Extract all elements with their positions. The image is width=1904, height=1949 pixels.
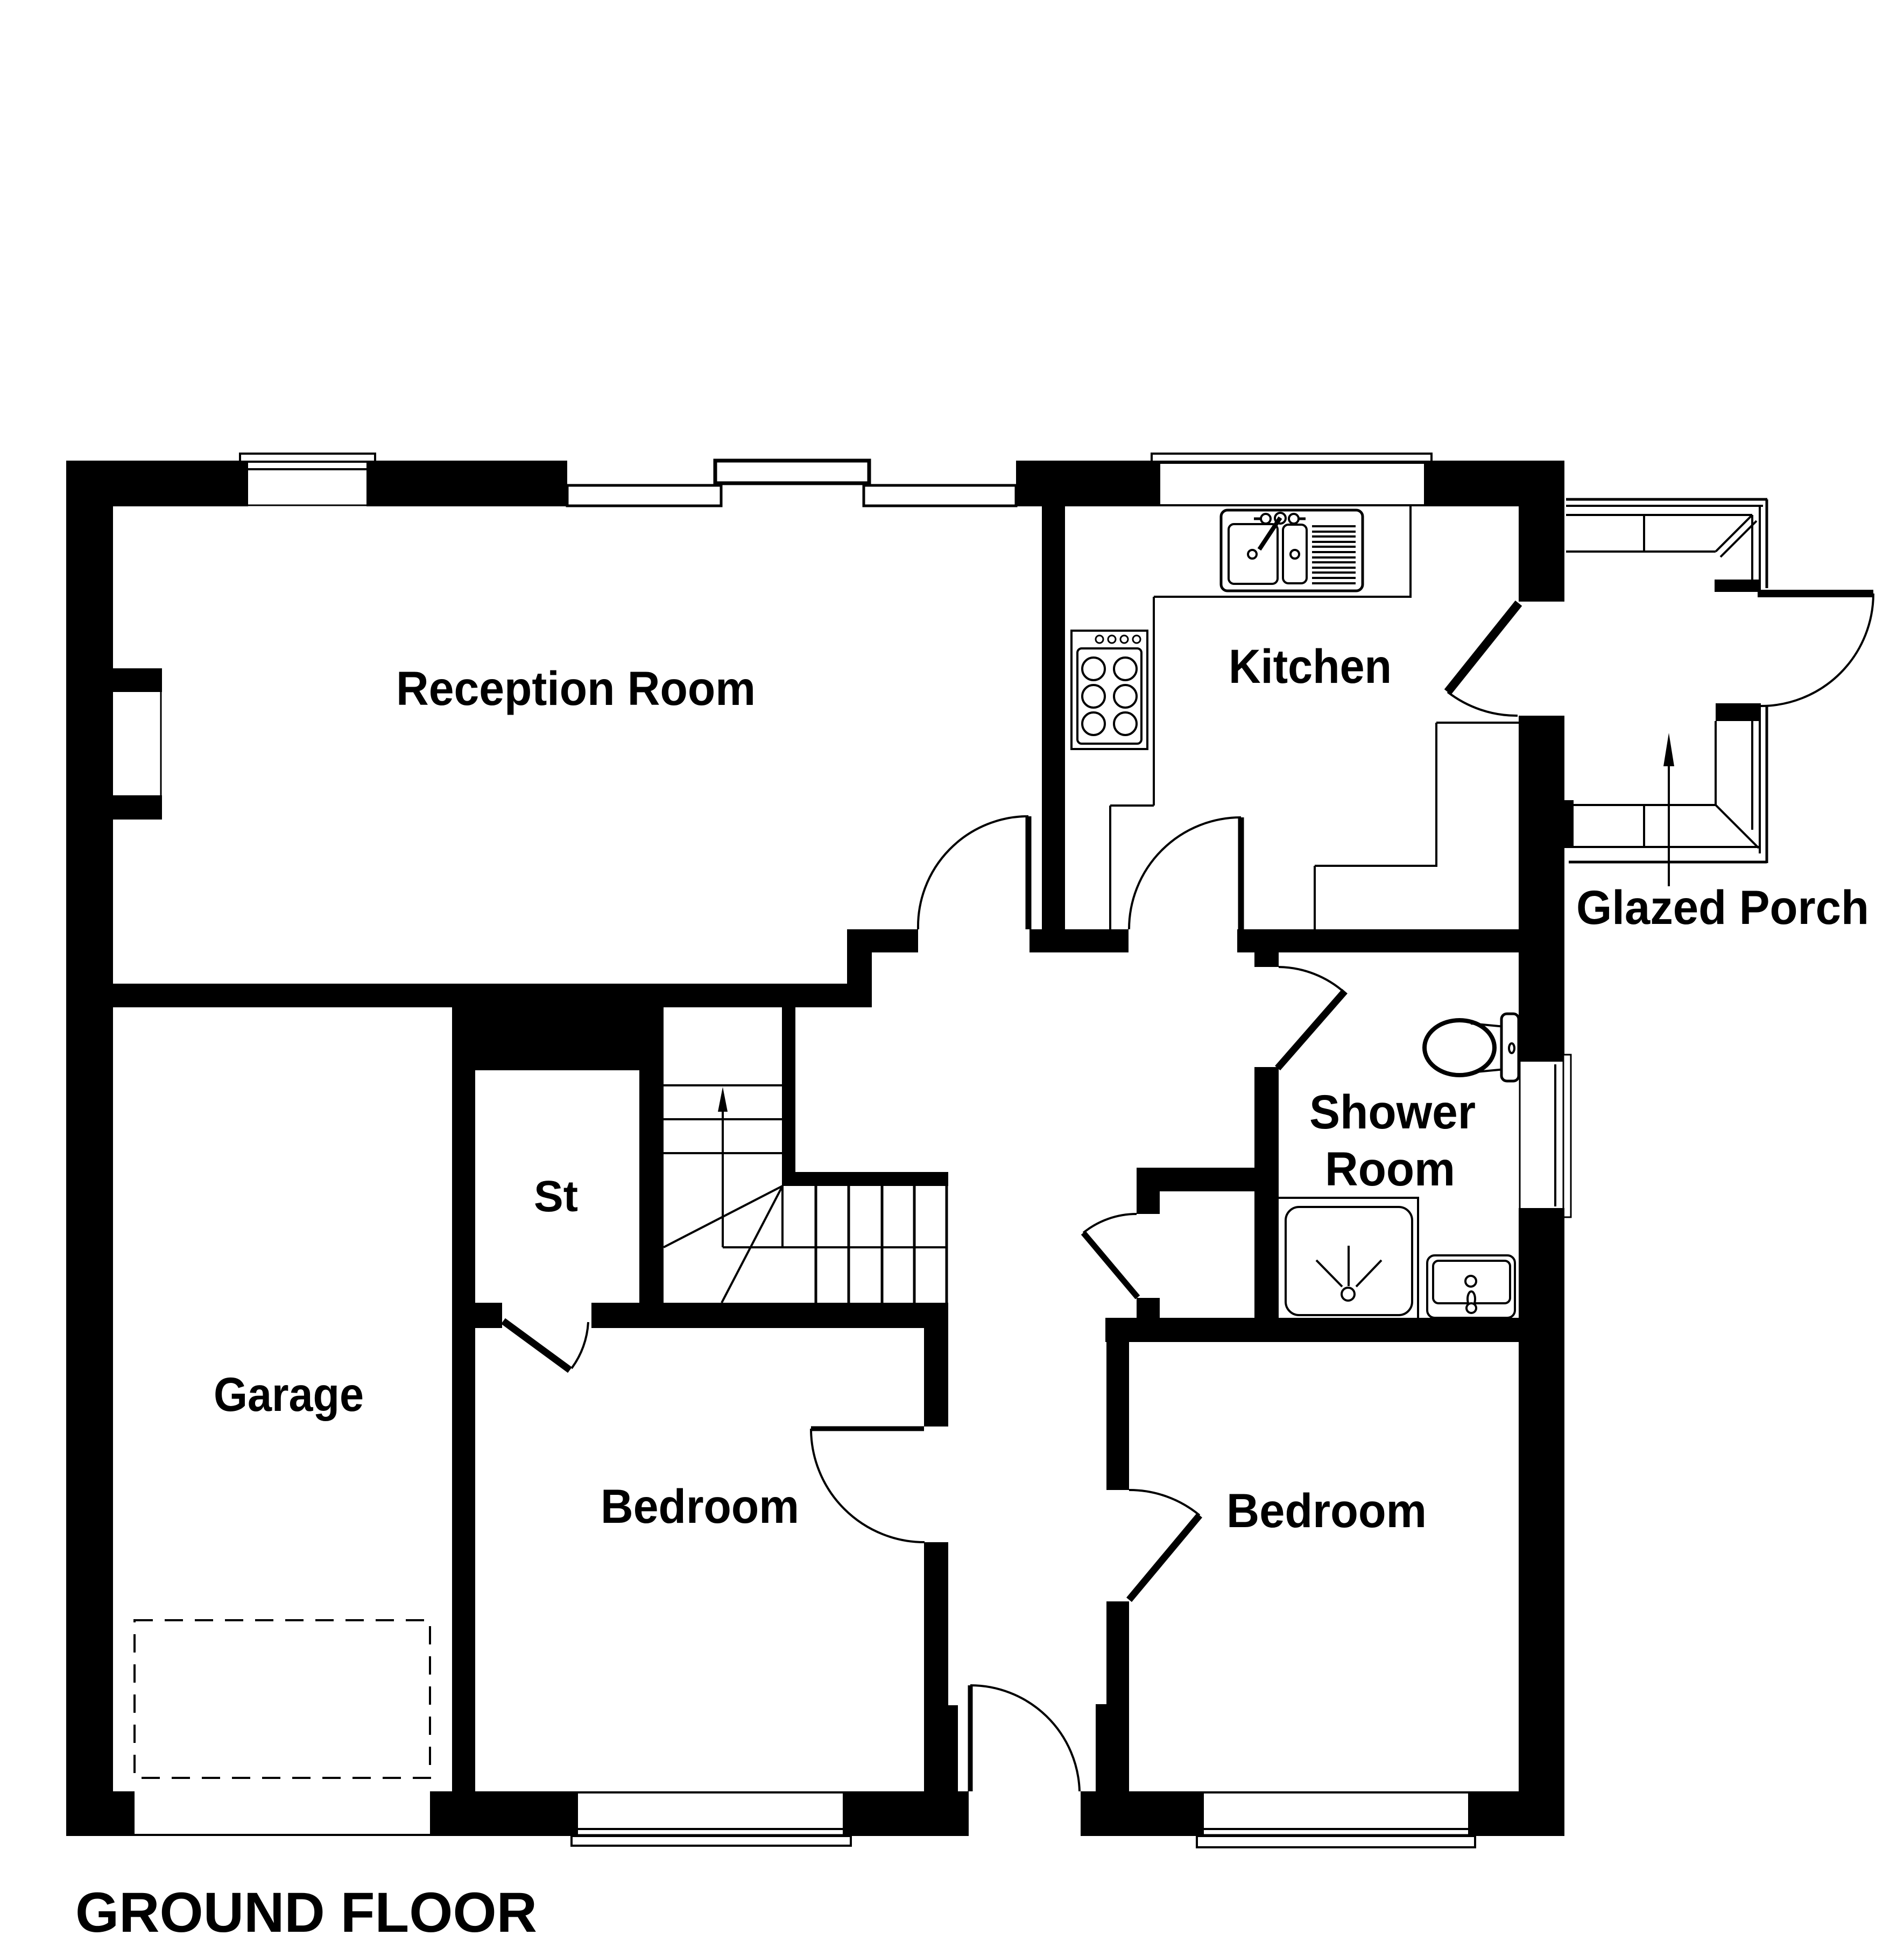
svg-text:Shower: Shower	[1309, 1085, 1476, 1139]
svg-text:Room: Room	[1325, 1142, 1455, 1196]
svg-text:GROUND FLOOR: GROUND FLOOR	[75, 1881, 537, 1944]
svg-text:Garage: Garage	[214, 1367, 364, 1421]
svg-text:Bedroom: Bedroom	[601, 1479, 799, 1533]
svg-text:St: St	[534, 1172, 578, 1221]
svg-text:Glazed Porch: Glazed Porch	[1576, 880, 1869, 934]
svg-text:Kitchen: Kitchen	[1229, 639, 1392, 693]
svg-text:Reception Room: Reception Room	[396, 661, 756, 715]
svg-text:Bedroom: Bedroom	[1226, 1484, 1427, 1537]
